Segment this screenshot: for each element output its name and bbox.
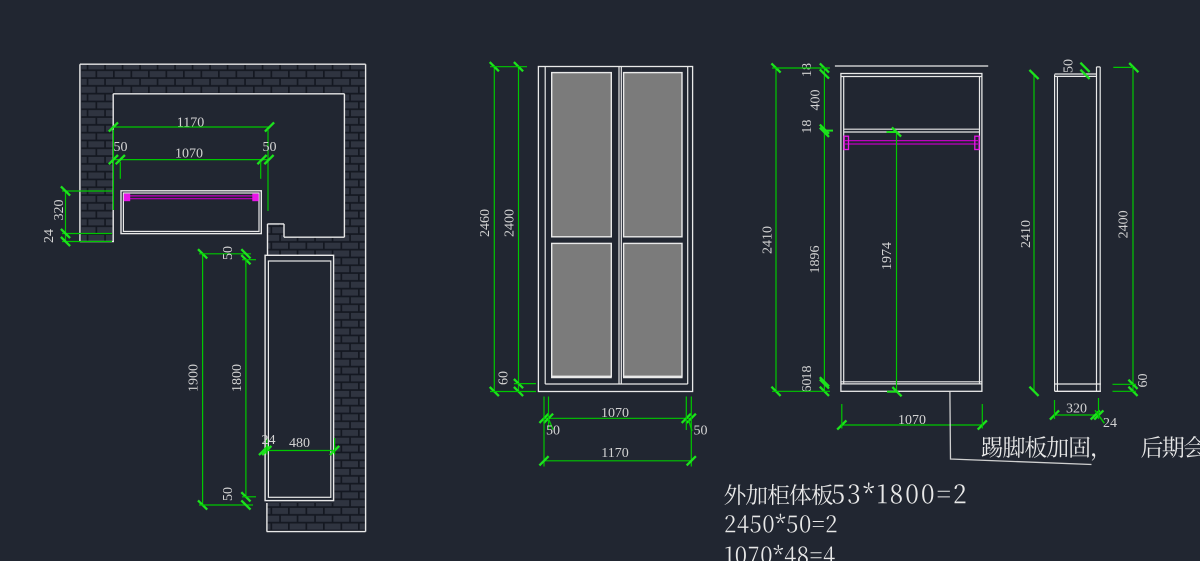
svg-text:50: 50 [263,140,277,155]
svg-text:400: 400 [809,90,824,111]
svg-text:320: 320 [1066,401,1087,416]
svg-text:2400: 2400 [1117,210,1132,238]
svg-text:2410: 2410 [1019,220,1034,248]
svg-text:1974: 1974 [880,242,895,270]
svg-text:24: 24 [42,229,57,243]
svg-text:24: 24 [1103,416,1117,431]
svg-text:18: 18 [800,63,815,77]
svg-text:18: 18 [800,120,815,134]
svg-text:2400: 2400 [503,209,518,237]
svg-text:1170: 1170 [177,115,204,130]
svg-text:50: 50 [114,140,128,155]
svg-text:2460: 2460 [478,209,493,237]
svg-text:24: 24 [262,433,276,448]
svg-text:1800: 1800 [230,364,245,392]
svg-text:320: 320 [52,200,67,221]
svg-text:50: 50 [221,246,236,260]
svg-text:480: 480 [289,436,310,451]
svg-text:1170: 1170 [601,446,628,461]
svg-text:50: 50 [546,423,560,438]
svg-text:1070: 1070 [601,406,629,421]
svg-text:1900: 1900 [187,364,202,392]
svg-text:60: 60 [1136,374,1151,388]
svg-text:60: 60 [800,379,815,393]
svg-text:18: 18 [800,366,815,380]
svg-text:1070: 1070 [175,146,203,161]
svg-text:50: 50 [1062,59,1077,73]
svg-text:50: 50 [221,487,236,501]
svg-text:60: 60 [497,371,512,385]
svg-text:2410: 2410 [761,226,776,254]
svg-text:1896: 1896 [808,246,823,274]
svg-text:50: 50 [694,423,708,438]
svg-text:1070: 1070 [898,413,926,428]
